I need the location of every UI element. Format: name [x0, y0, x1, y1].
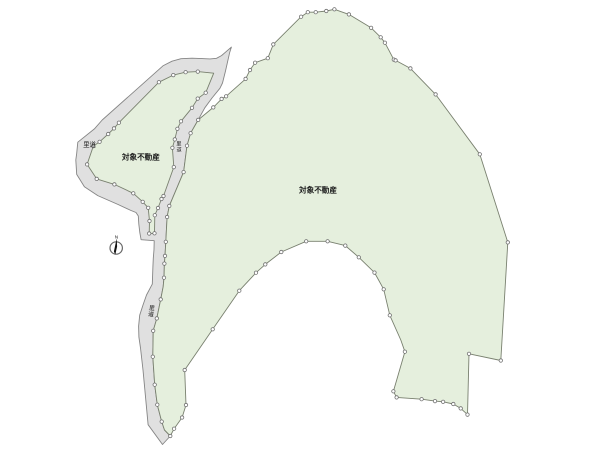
svg-text:対象不動産: 対象不動産 [298, 185, 337, 195]
svg-text:道: 道 [176, 145, 181, 153]
svg-text:対象不動産: 対象不動産 [121, 152, 160, 162]
svg-text:里道: 里道 [83, 139, 96, 148]
svg-text:N: N [115, 234, 119, 240]
